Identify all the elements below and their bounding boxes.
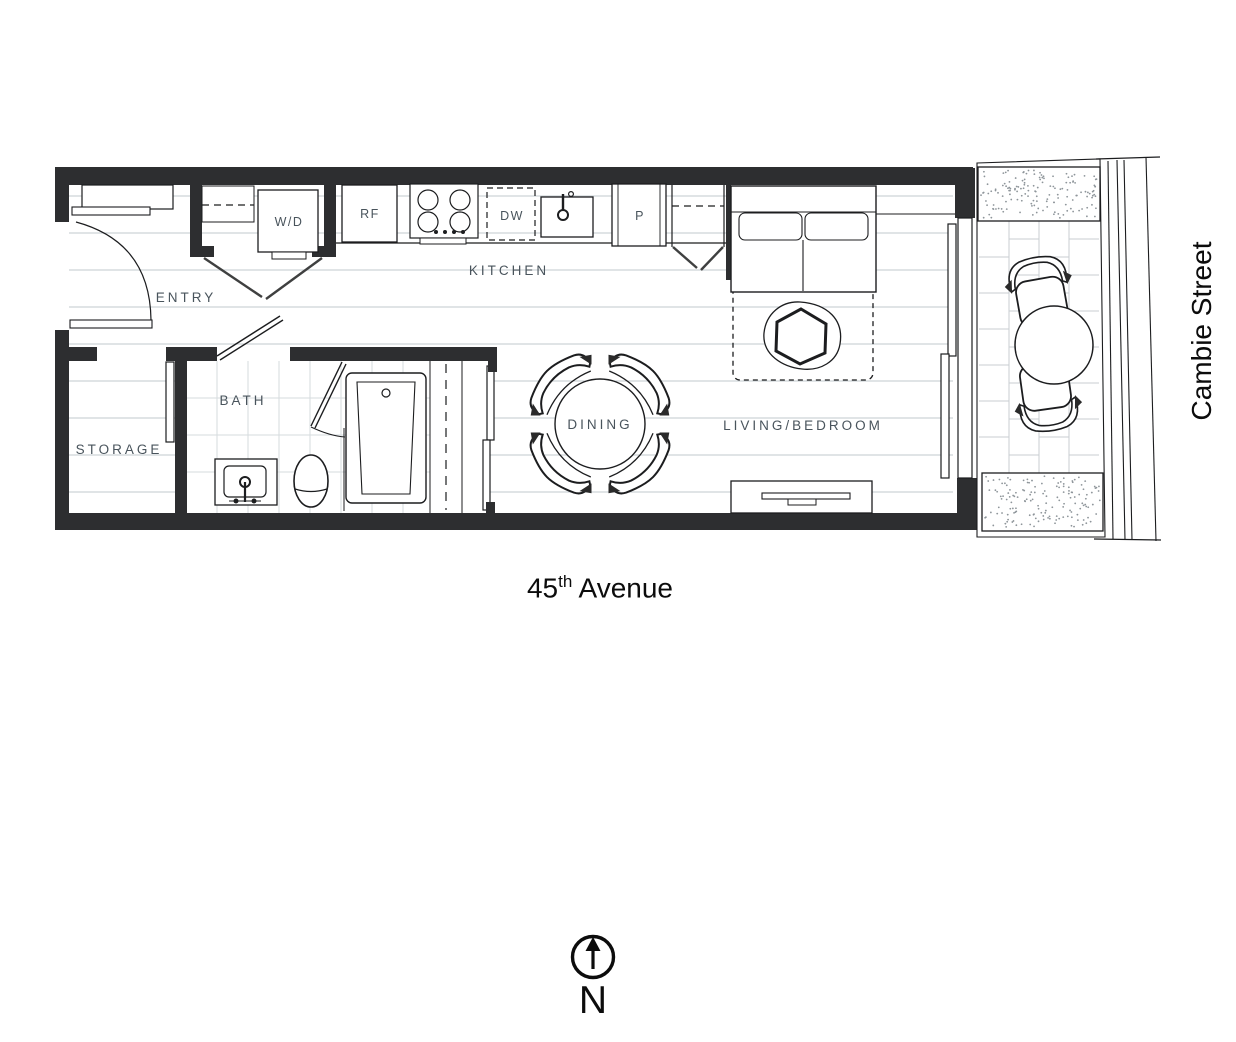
north-arrow-icon [573,937,614,978]
label-fridge: RF [360,207,380,221]
label-pantry: P [635,209,645,223]
window-wall [876,214,972,478]
label-living-bedroom: LIVING/BEDROOM [723,418,883,433]
tv-console [731,481,872,513]
wardrobe-closet [430,361,494,513]
label-kitchen: KITCHEN [469,263,549,278]
coffee-table [764,302,841,369]
balcony [977,157,1161,541]
label-washer-dryer: W/D [275,215,304,229]
label-dishwasher: DW [500,209,524,223]
label-storage: STORAGE [76,442,163,457]
label-bath: BATH [219,393,266,408]
label-dining: DINING [567,417,632,432]
storage-door [166,362,174,442]
avenue-number: 45 [527,572,558,603]
washer-dryer-closet [202,186,322,299]
avenue-street-label: 45th Avenue [400,572,800,604]
avenue-name: Avenue [572,572,673,603]
compass-north-label: N [579,979,607,1022]
kitchen-fixtures [336,184,726,270]
floor-plan-svg: ENTRY KITCHEN BATH STORAGE DINING LIVING… [0,0,1236,1042]
label-entry: ENTRY [156,290,217,305]
avenue-ordinal: th [558,572,572,591]
floor-plan-canvas: ENTRY KITCHEN BATH STORAGE DINING LIVING… [0,0,1236,1042]
cambie-street-label: Cambie Street [1186,211,1220,451]
